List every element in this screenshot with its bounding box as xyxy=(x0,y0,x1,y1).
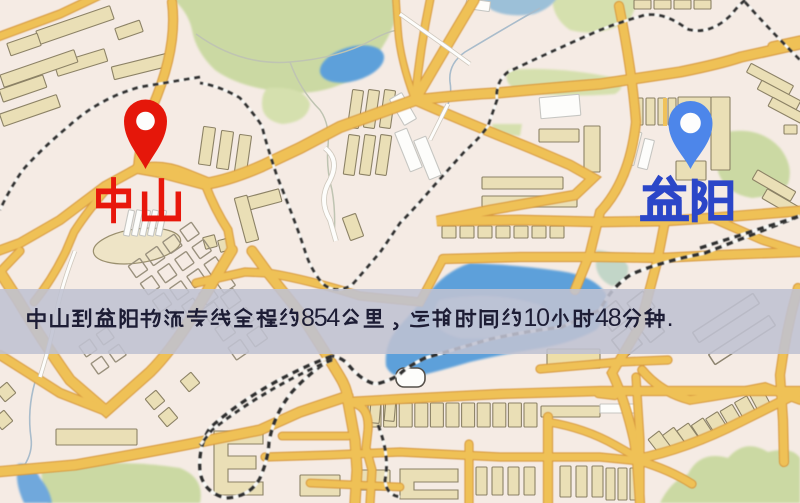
svg-text:.: . xyxy=(667,304,673,332)
svg-text:10: 10 xyxy=(523,304,549,332)
svg-text:48: 48 xyxy=(595,304,621,332)
svg-text:854: 854 xyxy=(301,304,340,332)
